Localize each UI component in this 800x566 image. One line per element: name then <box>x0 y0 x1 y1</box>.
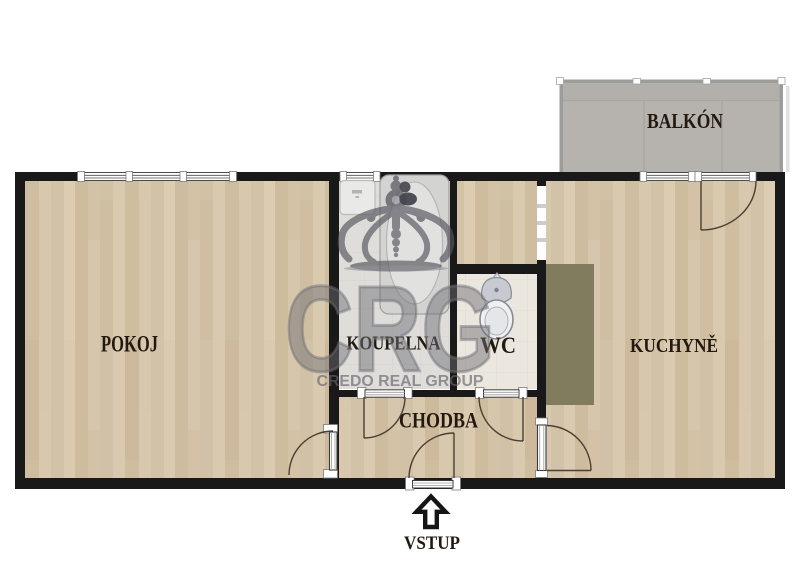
svg-text:CREDO REAL GROUP: CREDO REAL GROUP <box>317 373 484 390</box>
svg-text:KUCHYNĚ: KUCHYNĚ <box>630 333 718 357</box>
svg-text:CHODBA: CHODBA <box>399 408 478 433</box>
svg-text:BALKÓN: BALKÓN <box>647 109 723 133</box>
svg-text:VSTUP: VSTUP <box>404 533 460 554</box>
svg-text:POKOJ: POKOJ <box>101 332 158 357</box>
